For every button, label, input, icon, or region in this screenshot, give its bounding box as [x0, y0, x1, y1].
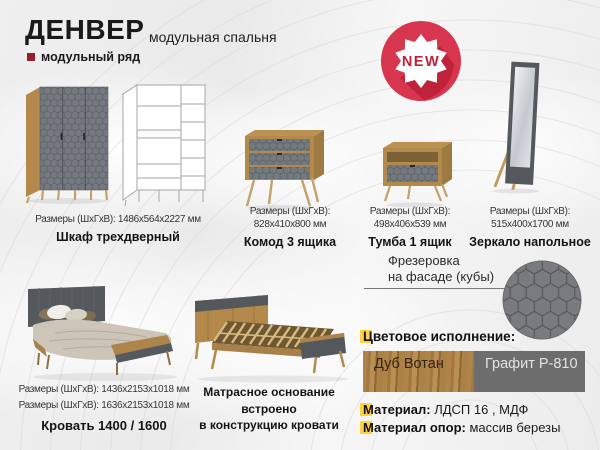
new-badge: NEW: [380, 20, 462, 102]
dresser-name: Комод 3 ящика: [232, 235, 348, 249]
mirror-dimensions-value: 515x400x1700 мм: [468, 218, 592, 231]
material-value: ЛДСП 16 , МДФ: [434, 402, 528, 417]
bed-image: [15, 283, 185, 383]
cube-pattern-icon: [502, 260, 582, 340]
bed-caption: Размеры (ШхГхВ): 1436x2153x1018 мм Разме…: [10, 383, 198, 433]
bed-name: Кровать 1400 / 1600: [10, 418, 198, 433]
wardrobe-interior-drawing: [117, 80, 209, 208]
bed-frame-image: [188, 291, 360, 383]
wardrobe-caption: Размеры (ШхГхВ): 1486x564x2227 мм Шкаф т…: [28, 213, 208, 244]
nightstand-dimensions-label: Размеры (ШхГхВ):: [352, 205, 468, 218]
dresser-dimensions-value: 828x410x800 мм: [232, 218, 348, 231]
swatch-graphite: Графит Р-810: [474, 351, 585, 392]
floor-mirror-image: [486, 60, 550, 196]
nightstand-caption: Размеры (ШхГхВ): 498x406x539 мм Тумба 1 …: [352, 205, 468, 249]
series-row: модульный ряд: [27, 50, 140, 64]
dresser-image: [242, 126, 327, 211]
color-options-heading: Цветовое исполнение:: [363, 329, 515, 344]
color-options-heading-row: Цветовое исполнение:: [363, 329, 515, 344]
material-label: Материал:: [363, 402, 431, 417]
red-square-bullet-icon: [27, 53, 35, 61]
dresser-caption: Размеры (ШхГхВ): 828x410x800 мм Комод 3 …: [232, 205, 348, 249]
material-row: Материал: ЛДСП 16 , МДФ: [363, 402, 528, 417]
milling-note-line1: Фрезеровка: [388, 253, 494, 269]
page-subtitle: модульная спальня: [149, 29, 277, 45]
wardrobe-dimensions: Размеры (ШхГхВ): 1486x564x2227 мм: [28, 213, 208, 226]
color-swatches: Дуб Вотан Графит Р-810: [363, 351, 585, 392]
nightstand-dimensions-value: 498x406x539 мм: [352, 218, 468, 231]
new-badge-label: NEW: [402, 54, 440, 70]
mattress-note-line2: в конструкцию кровати: [176, 417, 362, 434]
bed-dimensions-1400: Размеры (ШхГхВ): 1436x2153x1018 мм: [10, 383, 198, 396]
mirror-name: Зеркало напольное: [468, 235, 592, 249]
legs-material-label: Материал опор:: [363, 420, 466, 435]
series-label: модульный ряд: [41, 50, 140, 64]
dresser-dimensions-label: Размеры (ШхГхВ):: [232, 205, 348, 218]
wardrobe-image: [23, 83, 111, 205]
mattress-note: Матрасное основание встроено в конструкц…: [176, 384, 362, 434]
legs-material-value: массив березы: [469, 420, 560, 435]
mirror-dimensions-label: Размеры (ШхГхВ):: [468, 205, 592, 218]
legs-material-row: Материал опор: массив березы: [363, 420, 560, 435]
milling-note-line2: на фасаде (кубы): [388, 269, 494, 285]
catalog-page: ДЕНВЕР модульная спальня модульный ряд N…: [0, 0, 600, 450]
wardrobe-name: Шкаф трехдверный: [28, 230, 208, 244]
milling-pointer-line: [364, 288, 505, 289]
swatch-oak-wotan: Дуб Вотан: [363, 351, 474, 392]
bed-dimensions-1600: Размеры (ШхГхВ): 1636x2153x1018 мм: [10, 399, 198, 412]
swatch-oak-wotan-label: Дуб Вотан: [374, 356, 444, 372]
nightstand-image: [380, 139, 455, 209]
nightstand-name: Тумба 1 ящик: [352, 235, 468, 249]
mirror-caption: Размеры (ШхГхВ): 515x400x1700 мм Зеркало…: [468, 205, 592, 249]
page-title: ДЕНВЕР: [25, 14, 144, 46]
swatch-graphite-label: Графит Р-810: [485, 356, 578, 372]
milling-note: Фрезеровка на фасаде (кубы): [388, 253, 494, 285]
mattress-note-line1: Матрасное основание встроено: [176, 384, 362, 417]
